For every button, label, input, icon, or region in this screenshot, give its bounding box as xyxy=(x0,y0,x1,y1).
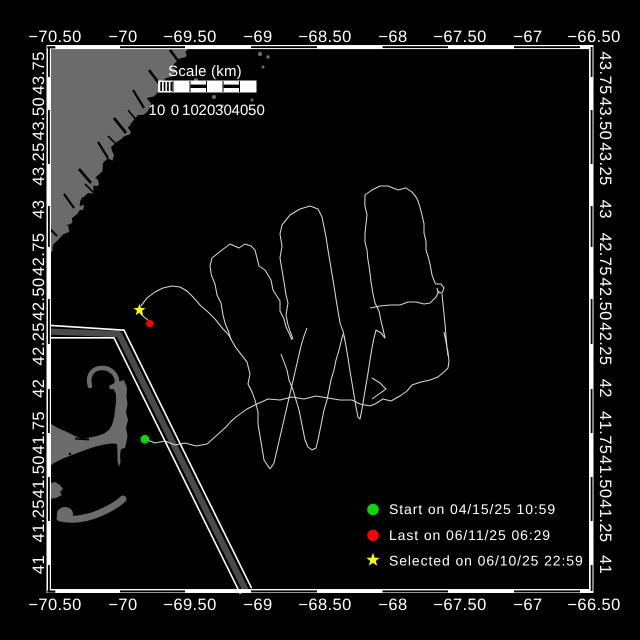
svg-text:−68.50: −68.50 xyxy=(298,596,351,614)
svg-text:Start on 04/15/25 10:59: Start on 04/15/25 10:59 xyxy=(389,501,556,517)
svg-text:−69: −69 xyxy=(243,28,272,46)
svg-text:−68.50: −68.50 xyxy=(298,28,351,46)
svg-text:42.75: 42.75 xyxy=(30,233,48,276)
svg-text:43.50: 43.50 xyxy=(596,97,614,140)
svg-text:42: 42 xyxy=(30,379,48,398)
svg-text:Selected on 06/10/25 22:59: Selected on 06/10/25 22:59 xyxy=(389,553,584,569)
svg-text:42.25: 42.25 xyxy=(30,322,48,365)
svg-text:−68: −68 xyxy=(378,28,407,46)
svg-text:50: 50 xyxy=(248,102,265,119)
svg-text:30: 30 xyxy=(215,102,232,119)
svg-text:41.75: 41.75 xyxy=(596,411,614,454)
svg-text:41: 41 xyxy=(30,555,48,574)
svg-text:Last on 06/11/25 06:29: Last on 06/11/25 06:29 xyxy=(389,527,551,543)
svg-text:43.25: 43.25 xyxy=(596,142,614,185)
svg-text:10: 10 xyxy=(148,102,165,119)
svg-text:−67.50: −67.50 xyxy=(433,28,486,46)
svg-text:41.75: 41.75 xyxy=(30,411,48,454)
svg-text:43.75: 43.75 xyxy=(596,51,614,94)
svg-text:42.50: 42.50 xyxy=(596,277,614,320)
svg-text:−70.50: −70.50 xyxy=(28,596,81,614)
svg-text:41.25: 41.25 xyxy=(596,499,614,542)
svg-text:−69.50: −69.50 xyxy=(163,28,216,46)
svg-text:43.25: 43.25 xyxy=(30,142,48,185)
svg-text:−66.50: −66.50 xyxy=(567,596,620,614)
svg-text:41: 41 xyxy=(596,555,614,574)
svg-text:42.25: 42.25 xyxy=(596,322,614,365)
svg-text:41.50: 41.50 xyxy=(30,455,48,498)
svg-text:43.50: 43.50 xyxy=(30,97,48,140)
svg-text:−67: −67 xyxy=(513,28,542,46)
svg-text:−66.50: −66.50 xyxy=(567,28,620,46)
svg-text:−69: −69 xyxy=(243,596,272,614)
svg-text:43: 43 xyxy=(596,200,614,219)
svg-text:41.50: 41.50 xyxy=(596,455,614,498)
svg-text:−70.50: −70.50 xyxy=(28,28,81,46)
svg-text:−69.50: −69.50 xyxy=(163,596,216,614)
svg-text:−70: −70 xyxy=(108,28,137,46)
svg-text:40: 40 xyxy=(231,102,248,119)
svg-text:42.75: 42.75 xyxy=(596,233,614,276)
svg-text:Scale (km): Scale (km) xyxy=(168,63,242,80)
svg-text:−67: −67 xyxy=(513,596,542,614)
svg-text:43.75: 43.75 xyxy=(30,51,48,94)
svg-text:20: 20 xyxy=(198,102,215,119)
svg-text:0: 0 xyxy=(171,102,180,119)
svg-text:42.50: 42.50 xyxy=(30,277,48,320)
svg-text:42: 42 xyxy=(596,379,614,398)
svg-text:−68: −68 xyxy=(378,596,407,614)
svg-text:−67.50: −67.50 xyxy=(433,596,486,614)
svg-text:41.25: 41.25 xyxy=(30,499,48,542)
svg-text:10: 10 xyxy=(182,102,199,119)
svg-text:−70: −70 xyxy=(108,596,137,614)
svg-text:43: 43 xyxy=(30,200,48,219)
